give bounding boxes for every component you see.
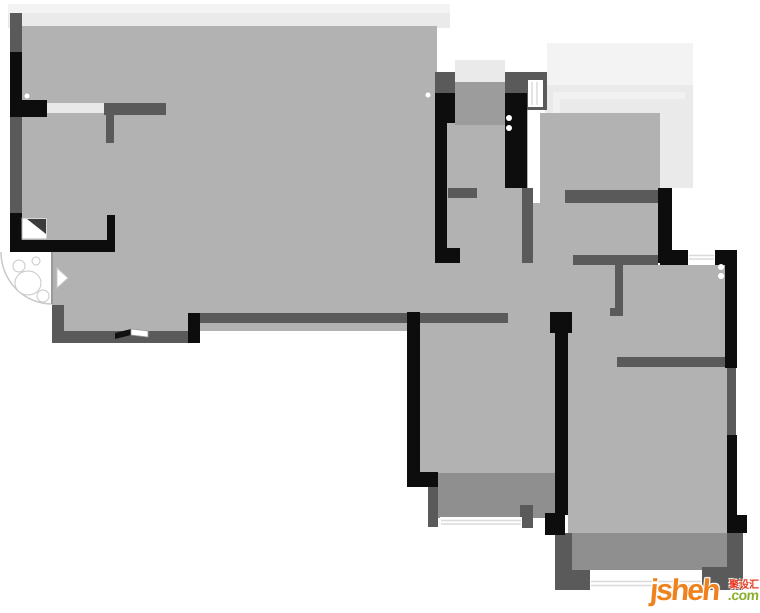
wall-segment-black	[107, 215, 115, 252]
wall-segment-black	[660, 250, 688, 265]
wall-segment-black	[435, 123, 447, 263]
wall-segment-black	[407, 472, 438, 487]
window	[590, 578, 702, 590]
wall-segment-black	[505, 93, 527, 188]
wall-segment-black	[407, 312, 420, 472]
entry-porch-glass	[455, 60, 505, 82]
wall-segment-black	[10, 240, 112, 252]
wall-segment	[448, 188, 477, 198]
wall-segment	[555, 533, 572, 590]
top-bay-window-inner	[8, 13, 450, 28]
top-bay-window-outer	[8, 4, 450, 13]
balcony-2-floor	[558, 533, 727, 570]
window	[440, 517, 522, 528]
wall-segment	[104, 103, 166, 115]
wall-segment-black	[550, 312, 572, 333]
wall-segment	[610, 308, 623, 316]
wall-segment	[10, 117, 22, 213]
balcony-1-floor	[438, 473, 555, 518]
entry-door-area	[455, 82, 505, 125]
wall-segment	[727, 360, 736, 438]
wall-segment-black	[555, 333, 568, 515]
entry-decor-sketch	[37, 290, 49, 302]
entry-decor-sketch	[13, 260, 25, 272]
window	[688, 252, 715, 263]
hinge-dot	[718, 264, 724, 270]
hinge-dot	[506, 115, 512, 121]
wall-segment-black	[435, 93, 455, 123]
wall-segment	[617, 357, 727, 367]
bedroom-2-floor	[568, 265, 727, 360]
right-balcony-outer	[547, 43, 693, 87]
wall-segment	[428, 487, 438, 527]
master-bedroom-floor	[568, 360, 727, 533]
wall-segment	[10, 13, 22, 52]
wall-segment-black	[10, 100, 47, 117]
wall-segment-black	[727, 435, 737, 533]
hinge-dot	[426, 93, 431, 98]
wall-segment-black	[725, 250, 737, 368]
wall-segment	[200, 313, 508, 323]
wall-segment-black	[435, 248, 460, 263]
hinge-dot	[506, 125, 512, 131]
wall-segment	[435, 72, 455, 93]
wall-segment	[522, 188, 533, 263]
wall-segment	[565, 190, 658, 203]
wall-segment	[106, 115, 114, 143]
bedroom-1-floor	[420, 313, 555, 475]
wall-segment	[615, 263, 623, 313]
wall-segment-black	[737, 515, 747, 533]
floorplan-image: jsheh 聚设汇 .com	[0, 0, 760, 613]
entry-decor-sketch	[15, 271, 41, 295]
hinge-dot	[718, 273, 724, 279]
living-room-floor	[22, 26, 437, 331]
floorplan-svg	[0, 0, 760, 613]
wall-segment-black	[188, 313, 200, 343]
window	[528, 80, 543, 107]
hinge-dot	[25, 94, 30, 99]
wall-segment-black	[545, 513, 565, 535]
entry-decor-sketch	[32, 257, 40, 265]
wall-segment	[702, 567, 743, 590]
door-opening	[47, 103, 104, 113]
